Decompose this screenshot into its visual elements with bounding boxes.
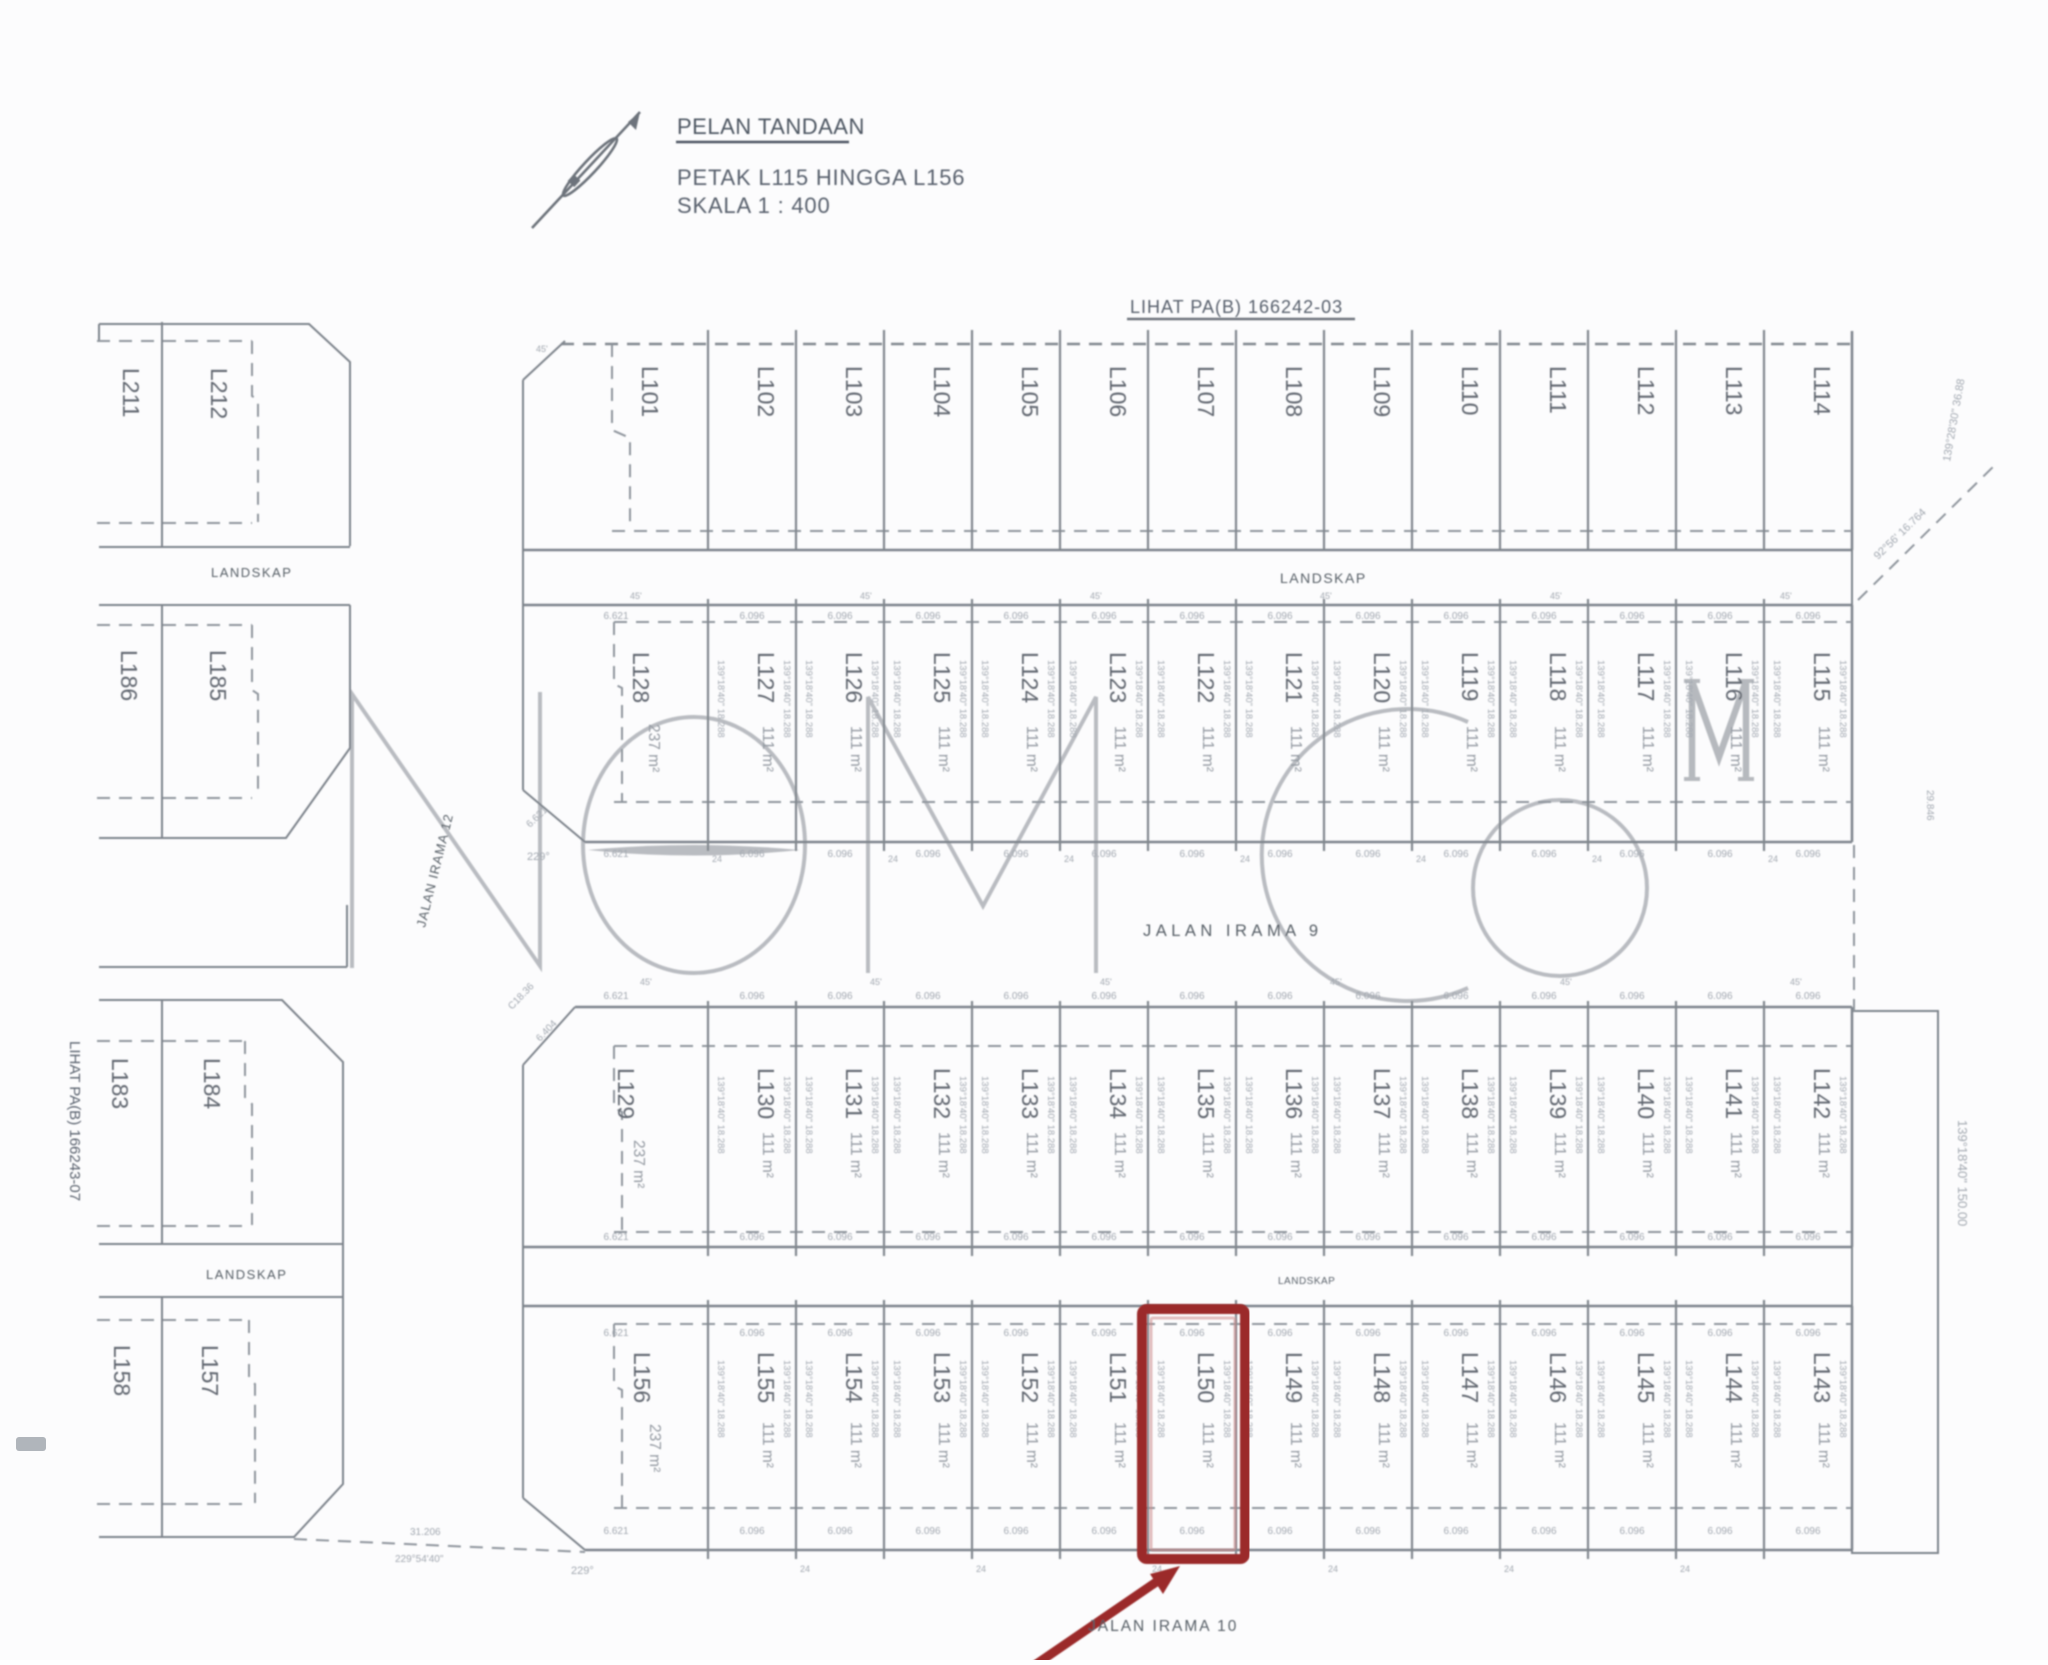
svg-text:111 m²: 111 m² [1111, 1422, 1128, 1468]
svg-text:45': 45' [860, 591, 872, 601]
svg-text:139°18'40" 18.288: 139°18'40" 18.288 [891, 1076, 902, 1154]
svg-text:6.096: 6.096 [1179, 849, 1204, 860]
svg-text:139°18'40" 18.288: 139°18'40" 18.288 [1771, 660, 1782, 738]
svg-text:111 m²: 111 m² [847, 726, 864, 772]
svg-text:6.096: 6.096 [1795, 1526, 1820, 1537]
svg-text:L137: L137 [1369, 1068, 1395, 1119]
svg-text:LIHAT PA(B) 166243-07: LIHAT PA(B) 166243-07 [66, 1041, 83, 1201]
svg-text:L108: L108 [1281, 366, 1307, 417]
svg-text:139°18'40" 18.288: 139°18'40" 18.288 [1045, 660, 1056, 738]
svg-text:6.096: 6.096 [1443, 1328, 1468, 1339]
svg-text:111 m²: 111 m² [1287, 726, 1304, 772]
svg-text:45': 45' [1100, 977, 1112, 987]
svg-text:111 m²: 111 m² [1287, 1422, 1304, 1468]
svg-text:L102: L102 [753, 366, 779, 417]
svg-text:LANDSKAP: LANDSKAP [1280, 570, 1367, 586]
svg-text:139°18'40" 18.288: 139°18'40" 18.288 [781, 1076, 792, 1154]
svg-text:6.096: 6.096 [1355, 1232, 1380, 1243]
svg-text:24: 24 [1240, 854, 1250, 864]
svg-text:L113: L113 [1721, 366, 1747, 415]
svg-text:139°18'40" 18.288: 139°18'40" 18.288 [1243, 660, 1254, 738]
svg-text:111 m²: 111 m² [935, 726, 952, 772]
svg-text:139°18'40" 18.288: 139°18'40" 18.288 [869, 1360, 880, 1438]
svg-text:6.096: 6.096 [739, 849, 764, 860]
svg-text:139°18'40" 18.288: 139°18'40" 18.288 [957, 1076, 968, 1154]
svg-text:139°18'40" 18.288: 139°18'40" 18.288 [1837, 660, 1848, 738]
svg-text:6.096: 6.096 [1003, 991, 1028, 1002]
svg-text:L151: L151 [1105, 1352, 1131, 1403]
svg-text:6.096: 6.096 [915, 1232, 940, 1243]
svg-text:45': 45' [536, 344, 548, 354]
svg-text:6.096: 6.096 [915, 991, 940, 1002]
svg-text:6.096: 6.096 [827, 1328, 852, 1339]
svg-text:139°18'40" 18.288: 139°18'40" 18.288 [1155, 1360, 1166, 1438]
svg-text:111 m²: 111 m² [1815, 726, 1832, 772]
svg-text:6.096: 6.096 [1091, 1232, 1116, 1243]
svg-text:24: 24 [888, 854, 898, 864]
svg-text:139°18'40" 18.288: 139°18'40" 18.288 [979, 1360, 990, 1438]
svg-text:L115: L115 [1809, 652, 1835, 701]
svg-text:6.096: 6.096 [1619, 1328, 1644, 1339]
svg-text:45': 45' [1330, 977, 1342, 987]
svg-text:111 m²: 111 m² [1551, 1132, 1568, 1178]
svg-text:111 m²: 111 m² [1375, 1422, 1392, 1468]
svg-text:139°18'40" 18.288: 139°18'40" 18.288 [1331, 1360, 1342, 1438]
svg-text:139°18'40" 18.288: 139°18'40" 18.288 [891, 660, 902, 738]
svg-text:139°18'40" 18.288: 139°18'40" 18.288 [1133, 1076, 1144, 1154]
svg-text:SKALA 1 : 400: SKALA 1 : 400 [677, 193, 831, 218]
svg-text:229°: 229° [571, 1565, 594, 1577]
svg-text:6.096: 6.096 [1355, 991, 1380, 1002]
svg-text:139°18'40" 18.288: 139°18'40" 18.288 [979, 1076, 990, 1154]
svg-text:111 m²: 111 m² [935, 1132, 952, 1178]
svg-text:111 m²: 111 m² [1111, 1132, 1128, 1178]
svg-text:139°18'40" 18.288: 139°18'40" 18.288 [1485, 660, 1496, 738]
svg-text:L114: L114 [1809, 366, 1835, 416]
svg-text:L153: L153 [929, 1352, 955, 1403]
svg-text:139°18'40" 18.288: 139°18'40" 18.288 [1309, 660, 1320, 738]
svg-text:L141: L141 [1721, 1068, 1747, 1119]
svg-text:139°18'40" 18.288: 139°18'40" 18.288 [1309, 1076, 1320, 1154]
svg-text:111 m²: 111 m² [1463, 1422, 1480, 1468]
svg-text:139°18'40" 18.288: 139°18'40" 18.288 [957, 1360, 968, 1438]
svg-text:139°18'40" 18.288: 139°18'40" 18.288 [1067, 1360, 1078, 1438]
svg-text:JALAN IRAMA 10: JALAN IRAMA 10 [1088, 1618, 1238, 1635]
svg-text:L185: L185 [205, 650, 231, 701]
svg-text:L112: L112 [1633, 366, 1659, 415]
svg-text:L135: L135 [1193, 1068, 1219, 1119]
svg-text:139°18'40" 150.00: 139°18'40" 150.00 [1955, 1120, 1970, 1226]
svg-text:6.096: 6.096 [1179, 1526, 1204, 1537]
svg-text:139°18'40" 18.288: 139°18'40" 18.288 [1419, 1360, 1430, 1438]
svg-text:139°18'40" 18.288: 139°18'40" 18.288 [1419, 660, 1430, 738]
svg-text:139°18'40" 18.288: 139°18'40" 18.288 [1573, 1076, 1584, 1154]
svg-text:L122: L122 [1193, 652, 1219, 703]
svg-text:L118: L118 [1545, 652, 1571, 701]
svg-text:6.096: 6.096 [827, 1526, 852, 1537]
svg-text:139°18'40" 18.288: 139°18'40" 18.288 [1749, 1076, 1760, 1154]
svg-text:L111: L111 [1545, 366, 1571, 414]
svg-text:L116: L116 [1721, 652, 1747, 701]
svg-text:139°18'40" 18.288: 139°18'40" 18.288 [1155, 660, 1166, 738]
svg-text:L104: L104 [929, 366, 955, 417]
svg-text:24: 24 [712, 854, 722, 864]
svg-text:139°18'40" 18.288: 139°18'40" 18.288 [1419, 1076, 1430, 1154]
svg-text:L128: L128 [628, 652, 654, 703]
svg-text:6.096: 6.096 [1355, 1526, 1380, 1537]
svg-text:139°18'40" 18.288: 139°18'40" 18.288 [781, 660, 792, 738]
svg-text:139°18'40" 18.288: 139°18'40" 18.288 [1507, 1076, 1518, 1154]
svg-text:111 m²: 111 m² [759, 1132, 776, 1178]
svg-text:L131: L131 [841, 1068, 867, 1119]
svg-text:139°18'40" 18.288: 139°18'40" 18.288 [979, 660, 990, 738]
svg-text:6.096: 6.096 [1531, 849, 1556, 860]
svg-text:111 m²: 111 m² [1551, 1422, 1568, 1468]
svg-text:139°18'40" 18.288: 139°18'40" 18.288 [1507, 660, 1518, 738]
svg-text:6.096: 6.096 [915, 1526, 940, 1537]
svg-text:6.096: 6.096 [1355, 849, 1380, 860]
svg-text:L125: L125 [929, 652, 955, 703]
svg-text:L186: L186 [116, 650, 142, 701]
svg-text:L120: L120 [1369, 652, 1395, 703]
svg-text:139°18'40" 18.288: 139°18'40" 18.288 [1221, 1076, 1232, 1154]
svg-text:L143: L143 [1809, 1352, 1835, 1403]
svg-text:6.096: 6.096 [915, 1328, 940, 1339]
svg-text:111 m²: 111 m² [1463, 726, 1480, 772]
svg-text:PETAK L115 HINGGA L156: PETAK L115 HINGGA L156 [677, 165, 965, 190]
svg-text:139°18'40" 18.288: 139°18'40" 18.288 [957, 660, 968, 738]
svg-text:31.206: 31.206 [410, 1527, 441, 1538]
svg-text:139°18'40" 18.288: 139°18'40" 18.288 [1771, 1360, 1782, 1438]
svg-text:111 m²: 111 m² [759, 726, 776, 772]
svg-text:6.096: 6.096 [1179, 611, 1204, 622]
svg-text:139°18'40" 18.288: 139°18'40" 18.288 [1067, 660, 1078, 738]
svg-text:111 m²: 111 m² [1111, 726, 1128, 772]
svg-text:6.096: 6.096 [1179, 1328, 1204, 1339]
svg-text:L157: L157 [197, 1345, 223, 1396]
svg-text:6.096: 6.096 [1091, 991, 1116, 1002]
svg-text:6.096: 6.096 [1267, 1328, 1292, 1339]
svg-text:6.096: 6.096 [1707, 1232, 1732, 1243]
svg-text:139°18'40" 18.288: 139°18'40" 18.288 [1485, 1360, 1496, 1438]
svg-text:L136: L136 [1281, 1068, 1307, 1119]
svg-text:6.096: 6.096 [1707, 1328, 1732, 1339]
svg-text:L155: L155 [753, 1352, 779, 1403]
svg-text:L101: L101 [637, 366, 663, 417]
svg-text:L117: L117 [1633, 652, 1659, 701]
svg-text:139°18'40" 18.288: 139°18'40" 18.288 [869, 1076, 880, 1154]
svg-text:139°18'40" 18.288: 139°18'40" 18.288 [803, 1360, 814, 1438]
svg-text:139°18'40" 18.288: 139°18'40" 18.288 [1661, 660, 1672, 738]
svg-text:L140: L140 [1633, 1068, 1659, 1119]
svg-text:139°18'40" 18.288: 139°18'40" 18.288 [1595, 1360, 1606, 1438]
svg-text:6.621: 6.621 [603, 991, 628, 1002]
svg-text:L133: L133 [1017, 1068, 1043, 1119]
svg-text:139°18'40" 18.288: 139°18'40" 18.288 [1309, 1360, 1320, 1438]
svg-text:6.096: 6.096 [1795, 991, 1820, 1002]
svg-text:6.096: 6.096 [1003, 1328, 1028, 1339]
svg-text:6.096: 6.096 [1267, 849, 1292, 860]
svg-text:111 m²: 111 m² [1023, 1132, 1040, 1178]
svg-text:L103: L103 [841, 366, 867, 417]
svg-text:6.096: 6.096 [1795, 1232, 1820, 1243]
svg-text:6.096: 6.096 [1619, 991, 1644, 1002]
svg-text:6.096: 6.096 [1443, 611, 1468, 622]
svg-text:L183: L183 [107, 1058, 133, 1109]
svg-text:29.846: 29.846 [1924, 790, 1935, 821]
svg-text:6.096: 6.096 [1443, 991, 1468, 1002]
svg-text:139°18'40" 18.288: 139°18'40" 18.288 [1595, 1076, 1606, 1154]
svg-text:6.096: 6.096 [1355, 611, 1380, 622]
svg-text:6.096: 6.096 [1531, 611, 1556, 622]
svg-text:139°18'40" 18.288: 139°18'40" 18.288 [1243, 1076, 1254, 1154]
svg-text:6.096: 6.096 [1795, 849, 1820, 860]
svg-text:111 m²: 111 m² [1375, 1132, 1392, 1178]
svg-text:6.096: 6.096 [1707, 1526, 1732, 1537]
svg-text:139°18'40" 18.288: 139°18'40" 18.288 [803, 1076, 814, 1154]
svg-text:L145: L145 [1633, 1352, 1659, 1403]
svg-text:139°18'40" 18.288: 139°18'40" 18.288 [1045, 1076, 1056, 1154]
svg-text:L129: L129 [613, 1068, 639, 1119]
svg-text:L139: L139 [1545, 1068, 1571, 1119]
svg-text:L147: L147 [1457, 1352, 1483, 1403]
svg-text:45': 45' [1790, 977, 1802, 987]
svg-text:6.096: 6.096 [1619, 1526, 1644, 1537]
svg-text:139°18'40" 18.288: 139°18'40" 18.288 [1661, 1076, 1672, 1154]
svg-text:111 m²: 111 m² [1551, 726, 1568, 772]
svg-text:139°18'40" 18.288: 139°18'40" 18.288 [715, 1360, 726, 1438]
svg-text:111 m²: 111 m² [1375, 726, 1392, 772]
svg-text:24: 24 [1592, 854, 1602, 864]
svg-text:L149: L149 [1281, 1352, 1307, 1403]
svg-text:L124: L124 [1017, 652, 1043, 703]
svg-text:139°18'40" 18.288: 139°18'40" 18.288 [1397, 1360, 1408, 1438]
svg-text:24: 24 [800, 1564, 810, 1574]
svg-text:139°18'40" 18.288: 139°18'40" 18.288 [1485, 1076, 1496, 1154]
svg-text:L154: L154 [841, 1352, 867, 1403]
svg-text:6.621: 6.621 [603, 611, 628, 622]
svg-text:6.096: 6.096 [1003, 849, 1028, 860]
svg-text:24: 24 [1680, 1564, 1690, 1574]
svg-text:LANDSKAP: LANDSKAP [206, 1267, 287, 1282]
svg-text:111 m²: 111 m² [847, 1132, 864, 1178]
svg-text:6.096: 6.096 [1003, 1526, 1028, 1537]
svg-text:L134: L134 [1105, 1068, 1131, 1119]
svg-text:139°18'40" 18.288: 139°18'40" 18.288 [1837, 1076, 1848, 1154]
svg-text:6.096: 6.096 [1707, 611, 1732, 622]
svg-text:139°18'40" 18.288: 139°18'40" 18.288 [1133, 660, 1144, 738]
svg-text:24: 24 [976, 1564, 986, 1574]
svg-text:L123: L123 [1105, 652, 1131, 703]
svg-text:111 m²: 111 m² [1023, 1422, 1040, 1468]
svg-text:139°18'40" 18.288: 139°18'40" 18.288 [715, 1076, 726, 1154]
svg-text:6.096: 6.096 [1443, 849, 1468, 860]
svg-text:139°18'40" 18.288: 139°18'40" 18.288 [1397, 1076, 1408, 1154]
svg-text:6.096: 6.096 [1619, 611, 1644, 622]
svg-text:111 m²: 111 m² [1023, 726, 1040, 772]
svg-text:6.096: 6.096 [739, 991, 764, 1002]
svg-text:6.096: 6.096 [827, 611, 852, 622]
svg-text:139°18'40" 18.288: 139°18'40" 18.288 [1397, 660, 1408, 738]
svg-text:111 m²: 111 m² [1199, 726, 1216, 772]
svg-text:139°18'40" 18.288: 139°18'40" 18.288 [1837, 1360, 1848, 1438]
svg-text:6.096: 6.096 [739, 1328, 764, 1339]
svg-text:111 m²: 111 m² [759, 1422, 776, 1468]
svg-text:237 m²: 237 m² [645, 724, 662, 772]
svg-text:139°18'40" 18.288: 139°18'40" 18.288 [891, 1360, 902, 1438]
svg-text:6.096: 6.096 [827, 991, 852, 1002]
svg-text:24: 24 [1416, 854, 1426, 864]
svg-text:111 m²: 111 m² [1639, 1132, 1656, 1178]
svg-text:L212: L212 [206, 368, 232, 419]
svg-text:111 m²: 111 m² [1287, 1132, 1304, 1178]
svg-text:6.096: 6.096 [1091, 1328, 1116, 1339]
svg-text:6.096: 6.096 [1619, 849, 1644, 860]
svg-text:6.096: 6.096 [1531, 1526, 1556, 1537]
svg-text:6.096: 6.096 [1531, 1328, 1556, 1339]
svg-text:6.096: 6.096 [915, 849, 940, 860]
svg-text:111 m²: 111 m² [1199, 1132, 1216, 1178]
svg-text:PELAN TANDAAN: PELAN TANDAAN [677, 114, 865, 139]
svg-text:L130: L130 [753, 1068, 779, 1119]
svg-text:6.096: 6.096 [1707, 991, 1732, 1002]
svg-text:6.096: 6.096 [1443, 1232, 1468, 1243]
svg-text:6.096: 6.096 [1795, 1328, 1820, 1339]
svg-text:6.096: 6.096 [1091, 1526, 1116, 1537]
svg-text:6.096: 6.096 [1707, 849, 1732, 860]
svg-text:L150: L150 [1193, 1352, 1219, 1403]
svg-text:139°18'40" 18.288: 139°18'40" 18.288 [1749, 1360, 1760, 1438]
svg-text:139°18'40" 18.288: 139°18'40" 18.288 [1683, 1076, 1694, 1154]
svg-text:139°18'40" 18.288: 139°18'40" 18.288 [1683, 660, 1694, 738]
svg-text:6.096: 6.096 [1795, 611, 1820, 622]
svg-text:LIHAT PA(B) 166242-03: LIHAT PA(B) 166242-03 [1130, 297, 1343, 317]
svg-text:139°18'40" 18.288: 139°18'40" 18.288 [1331, 1076, 1342, 1154]
svg-text:139°18'40" 18.288: 139°18'40" 18.288 [1221, 1360, 1232, 1438]
svg-text:139°18'40" 18.288: 139°18'40" 18.288 [1045, 1360, 1056, 1438]
svg-text:139°18'40" 18.288: 139°18'40" 18.288 [1067, 1076, 1078, 1154]
svg-text:6.096: 6.096 [827, 849, 852, 860]
svg-text:6.096: 6.096 [1531, 1232, 1556, 1243]
svg-text:111 m²: 111 m² [1463, 1132, 1480, 1178]
svg-text:6.096: 6.096 [1091, 611, 1116, 622]
svg-text:139°18'40" 18.288: 139°18'40" 18.288 [715, 660, 726, 738]
svg-text:6.096: 6.096 [1267, 611, 1292, 622]
svg-text:L132: L132 [929, 1068, 955, 1119]
svg-text:111 m²: 111 m² [1727, 726, 1744, 772]
svg-text:6.096: 6.096 [1267, 991, 1292, 1002]
svg-text:45': 45' [1320, 591, 1332, 601]
svg-text:L144: L144 [1721, 1352, 1747, 1403]
svg-text:139°18'40" 18.288: 139°18'40" 18.288 [1771, 1076, 1782, 1154]
svg-text:111 m²: 111 m² [1727, 1422, 1744, 1468]
svg-text:6.096: 6.096 [1267, 1232, 1292, 1243]
svg-text:6.621: 6.621 [603, 1232, 628, 1243]
svg-text:139°18'40" 18.288: 139°18'40" 18.288 [1661, 1360, 1672, 1438]
svg-text:45': 45' [1780, 591, 1792, 601]
svg-text:229°54'40": 229°54'40" [395, 1554, 444, 1565]
svg-text:L110: L110 [1457, 366, 1483, 415]
svg-text:45': 45' [870, 977, 882, 987]
svg-text:139°18'40" 18.288: 139°18'40" 18.288 [1155, 1076, 1166, 1154]
svg-text:237 m²: 237 m² [630, 1140, 647, 1188]
svg-text:45': 45' [1560, 977, 1572, 987]
svg-text:L152: L152 [1017, 1352, 1043, 1403]
svg-text:139°18'40" 18.288: 139°18'40" 18.288 [1595, 660, 1606, 738]
svg-text:6.621: 6.621 [603, 1328, 628, 1339]
svg-text:6.096: 6.096 [1267, 1526, 1292, 1537]
svg-text:L138: L138 [1457, 1068, 1483, 1119]
svg-text:L105: L105 [1017, 366, 1043, 417]
svg-text:139°18'40" 18.288: 139°18'40" 18.288 [803, 660, 814, 738]
svg-text:6.096: 6.096 [1003, 1232, 1028, 1243]
svg-text:6.096: 6.096 [915, 611, 940, 622]
svg-text:45': 45' [1090, 591, 1102, 601]
svg-text:111 m²: 111 m² [935, 1422, 952, 1468]
svg-text:L148: L148 [1369, 1352, 1395, 1403]
svg-text:L211: L211 [118, 368, 144, 417]
svg-text:6.096: 6.096 [1091, 849, 1116, 860]
svg-text:24: 24 [1064, 854, 1074, 864]
svg-text:LANDSKAP: LANDSKAP [1278, 1276, 1335, 1287]
svg-text:L127: L127 [753, 652, 779, 703]
svg-text:L156: L156 [629, 1352, 655, 1403]
svg-text:L142: L142 [1809, 1068, 1835, 1119]
svg-text:6.096: 6.096 [1355, 1328, 1380, 1339]
svg-text:24: 24 [1768, 854, 1778, 864]
svg-text:24: 24 [1328, 1564, 1338, 1574]
svg-text:6.096: 6.096 [1531, 991, 1556, 1002]
svg-text:45': 45' [630, 591, 642, 601]
svg-text:L107: L107 [1193, 366, 1219, 417]
svg-text:237 m²: 237 m² [646, 1424, 663, 1472]
svg-text:111 m²: 111 m² [1727, 1132, 1744, 1178]
svg-text:111 m²: 111 m² [1639, 1422, 1656, 1468]
svg-text:111 m²: 111 m² [1815, 1132, 1832, 1178]
svg-text:L119: L119 [1457, 652, 1483, 701]
svg-text:111 m²: 111 m² [1199, 1422, 1216, 1468]
svg-text:45': 45' [640, 977, 652, 987]
svg-text:6.096: 6.096 [1443, 1526, 1468, 1537]
svg-text:L109: L109 [1369, 366, 1395, 417]
svg-text:24: 24 [1504, 1564, 1514, 1574]
svg-text:139°18'40" 18.288: 139°18'40" 18.288 [1683, 1360, 1694, 1438]
svg-text:6.096: 6.096 [827, 1232, 852, 1243]
svg-text:L184: L184 [199, 1058, 225, 1109]
svg-text:6.096: 6.096 [739, 1526, 764, 1537]
svg-text:139°18'40" 18.288: 139°18'40" 18.288 [1573, 1360, 1584, 1438]
svg-text:139°18'40" 18.288: 139°18'40" 18.288 [1749, 660, 1760, 738]
svg-text:6.096: 6.096 [1179, 991, 1204, 1002]
svg-text:JALAN IRAMA 9: JALAN IRAMA 9 [1143, 922, 1323, 940]
svg-text:L106: L106 [1105, 366, 1131, 417]
svg-text:139°18'40" 18.288: 139°18'40" 18.288 [1331, 660, 1342, 738]
svg-text:6.096: 6.096 [739, 611, 764, 622]
svg-text:6.096: 6.096 [1619, 1232, 1644, 1243]
svg-text:LANDSKAP: LANDSKAP [211, 565, 292, 580]
svg-text:L158: L158 [109, 1345, 135, 1396]
svg-text:L121: L121 [1281, 652, 1307, 703]
svg-text:6.621: 6.621 [603, 1526, 628, 1537]
svg-text:L126: L126 [841, 652, 867, 703]
svg-text:111 m²: 111 m² [1639, 726, 1656, 772]
svg-text:139°18'40" 18.288: 139°18'40" 18.288 [869, 660, 880, 738]
svg-text:6.096: 6.096 [739, 1232, 764, 1243]
svg-text:139°18'40" 18.288: 139°18'40" 18.288 [1221, 660, 1232, 738]
svg-text:6.096: 6.096 [1003, 611, 1028, 622]
svg-text:139°18'40" 18.288: 139°18'40" 18.288 [781, 1360, 792, 1438]
svg-text:229°: 229° [527, 851, 550, 863]
